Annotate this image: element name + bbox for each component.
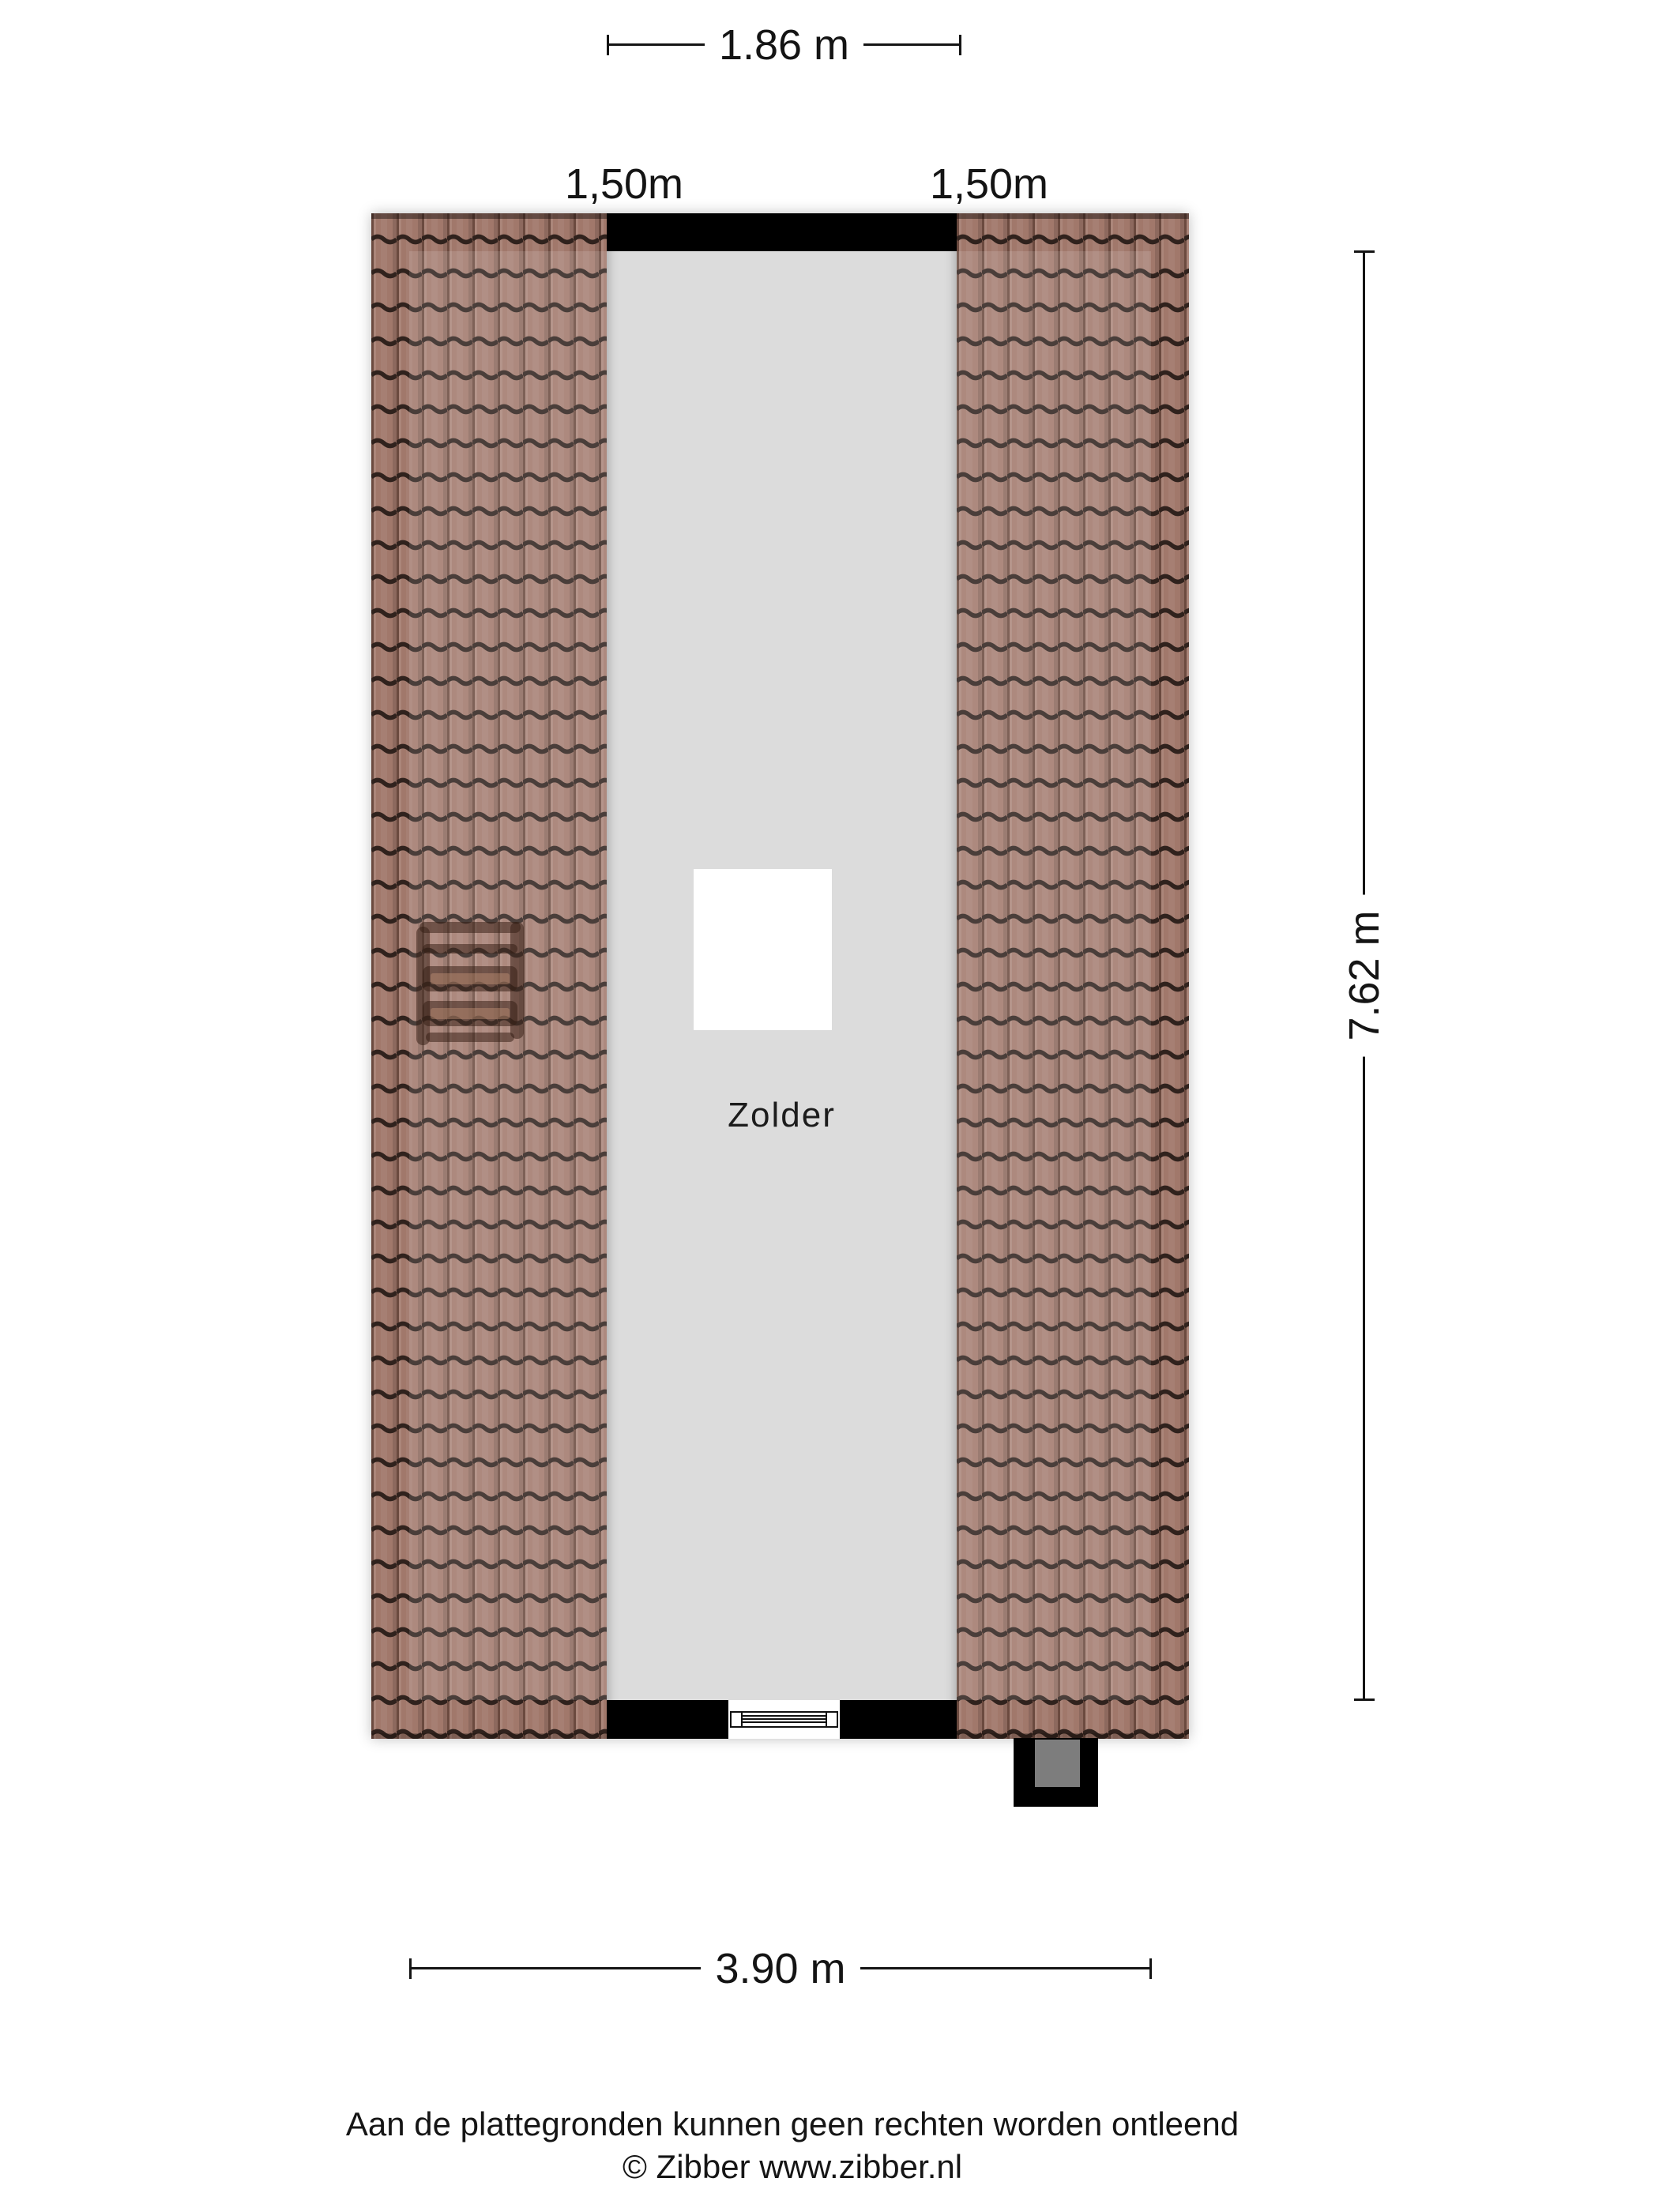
window-mullion <box>826 1713 827 1726</box>
window-frame <box>730 1711 838 1728</box>
dimension-top-label: 1.86 m <box>705 24 863 66</box>
dimension-bottom-tick-left <box>409 1958 412 1979</box>
window-slat-line <box>743 1718 826 1720</box>
knee-wall-label-right: 1,50m <box>930 163 1048 205</box>
footer-disclaimer: Aan de plattegronden kunnen geen rechten… <box>0 2103 1585 2146</box>
window-slat-line <box>743 1721 826 1723</box>
dimension-right-tick-bottom <box>1354 1698 1375 1701</box>
chimney <box>1014 1738 1098 1807</box>
wall-top <box>607 213 957 251</box>
roof-object-chair <box>416 922 524 1045</box>
roof-object-bar <box>426 1033 514 1042</box>
dimension-right-tick-top <box>1354 250 1375 253</box>
dimension-bottom-label: 3.90 m <box>701 1947 860 1990</box>
dimension-top-tick-left <box>607 35 609 55</box>
dimension-top-tick-right <box>959 35 961 55</box>
roof-object-bar <box>423 944 517 954</box>
floorplan: Zolder <box>371 213 1189 1739</box>
window <box>728 1700 840 1739</box>
dimension-bottom-tick-right <box>1149 1958 1152 1979</box>
knee-wall-label-left: 1,50m <box>565 163 683 205</box>
chimney-flue <box>1035 1740 1080 1787</box>
footer-copyright: © Zibber www.zibber.nl <box>0 2146 1585 2188</box>
room-label: Zolder <box>607 1098 957 1133</box>
dimension-top: 1.86 m <box>607 34 961 56</box>
footer: Aan de plattegronden kunnen geen rechten… <box>0 2103 1585 2188</box>
dimension-right: 7.62 m <box>1353 250 1375 1701</box>
roof-object-slat <box>423 1001 517 1026</box>
floorplan-page: 1.86 m 1,50m 1,50m <box>0 0 1659 2212</box>
roof-object-slat <box>423 966 517 991</box>
dimension-right-label: 7.62 m <box>1343 894 1386 1056</box>
dimension-bottom: 3.90 m <box>409 1958 1152 1980</box>
roof-object-bar <box>419 922 521 933</box>
skylight <box>694 869 832 1030</box>
window-slat-line <box>743 1715 826 1717</box>
roof-right <box>957 213 1189 1739</box>
